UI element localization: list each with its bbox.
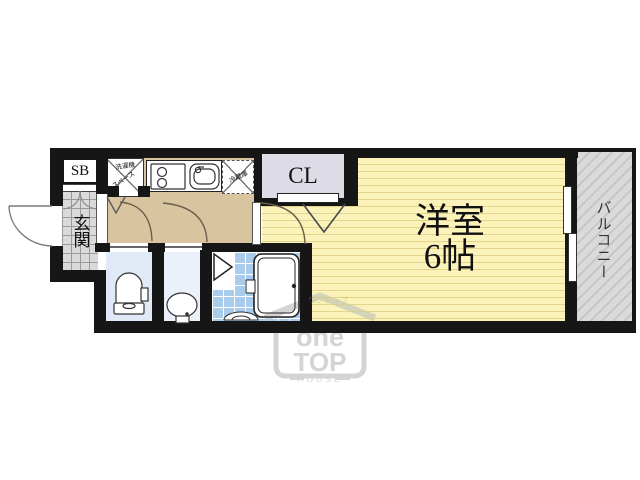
genkan-label: 玄関 bbox=[62, 196, 98, 266]
balcony-label: バルコニー bbox=[585, 175, 621, 305]
entrance-door-icon bbox=[9, 206, 52, 246]
watermark-logo: one TOP HOUSE bbox=[250, 288, 390, 388]
logo-roof bbox=[265, 296, 375, 318]
floorplan-canvas: SB 玄関 洗濯機 スペース 冷蔵庫 CL 洋室 6帖 バルコニー ワントップ … bbox=[0, 0, 640, 480]
room-door-swing bbox=[261, 203, 305, 244]
shoebox-label: SB bbox=[62, 160, 98, 182]
logo-text-house: HOUSE bbox=[297, 374, 342, 384]
closet-label: CL bbox=[262, 156, 344, 196]
toilet-icon bbox=[114, 273, 148, 314]
hall-door-swing-2 bbox=[163, 203, 207, 242]
main-room-size: 6帖 bbox=[424, 239, 477, 274]
washbasin-icon bbox=[167, 293, 197, 323]
stove-icon bbox=[151, 164, 185, 189]
closet-bifold-icon bbox=[303, 204, 345, 232]
kitchen-sink-icon bbox=[190, 164, 219, 189]
main-room-name: 洋室 bbox=[415, 204, 485, 239]
hall-door-swing-1 bbox=[120, 202, 152, 241]
washer-fold-door-icon bbox=[107, 197, 125, 213]
bath-fold-door-icon bbox=[214, 254, 232, 280]
main-room-label: 洋室 6帖 bbox=[380, 203, 520, 275]
logo-text-top: TOP bbox=[294, 347, 347, 377]
